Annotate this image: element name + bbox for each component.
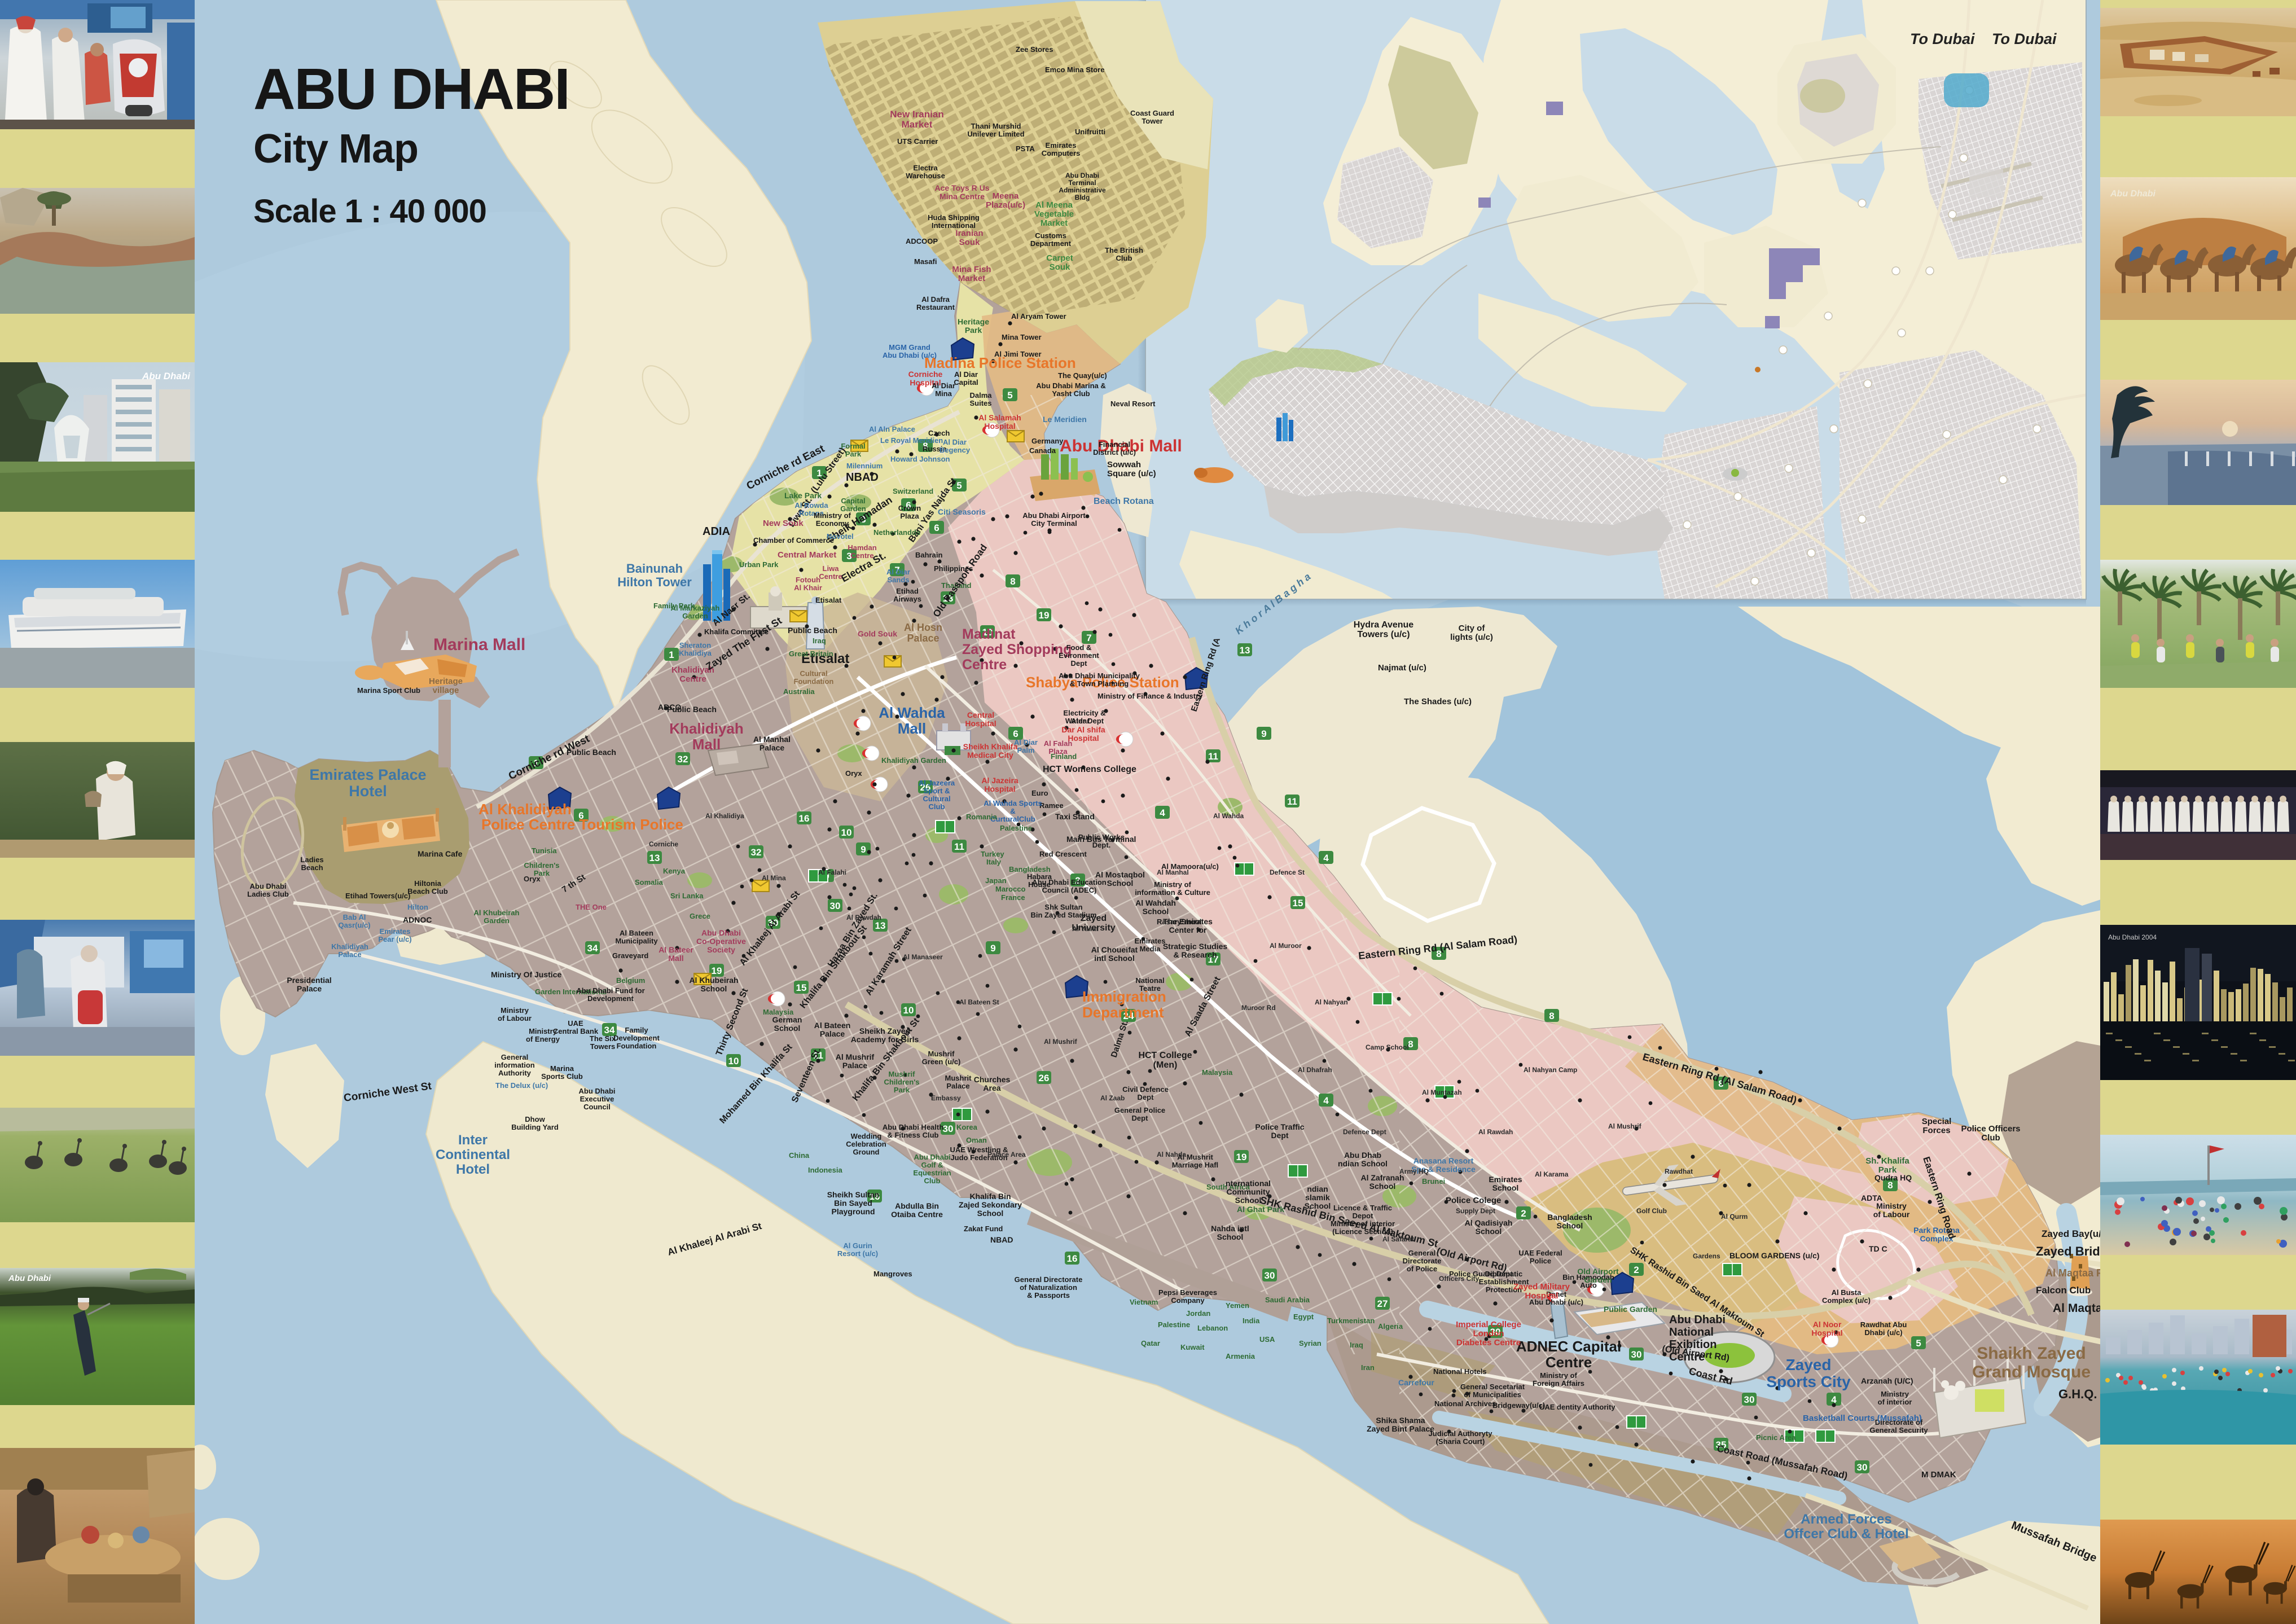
svg-text:Inter: Inter <box>458 1133 488 1148</box>
svg-text:Al Khubeirah: Al Khubeirah <box>689 976 738 985</box>
svg-text:Abu Dhabi Health: Abu Dhabi Health <box>883 1123 943 1131</box>
svg-text:lights (u/c): lights (u/c) <box>1450 633 1493 642</box>
svg-text:Marina Mall: Marina Mall <box>433 635 525 654</box>
svg-text:Etisalat: Etisalat <box>815 596 842 604</box>
svg-text:General Security: General Security <box>1869 1426 1928 1434</box>
svg-text:Lake Park: Lake Park <box>784 491 822 500</box>
svg-text:Mall: Mall <box>668 954 683 963</box>
svg-text:Sports Club: Sports Club <box>541 1072 583 1081</box>
svg-text:Ladies Club: Ladies Club <box>247 890 289 898</box>
svg-text:General Directorate: General Directorate <box>1015 1275 1083 1284</box>
svg-text:Al Khubeirah: Al Khubeirah <box>474 908 520 917</box>
svg-text:Electricity &: Electricity & <box>1063 709 1105 717</box>
svg-text:Al Diar: Al Diar <box>886 568 910 576</box>
svg-text:Bin Zayed Stadium: Bin Zayed Stadium <box>1030 911 1096 919</box>
svg-text:Al Nahda: Al Nahda <box>1157 1151 1186 1158</box>
svg-text:District (u/c): District (u/c) <box>1093 448 1136 457</box>
svg-text:Abu Dhabi Fund for: Abu Dhabi Fund for <box>576 986 644 995</box>
svg-text:G.H.Q.: G.H.Q. <box>2058 1387 2097 1401</box>
svg-text:Children's: Children's <box>884 1078 919 1086</box>
svg-text:Sheikh Sultan: Sheikh Sultan <box>827 1190 880 1199</box>
svg-text:& Fitness Club: & Fitness Club <box>887 1131 938 1139</box>
svg-text:Grece: Grece <box>690 912 710 920</box>
svg-text:intl School: intl School <box>1094 954 1135 963</box>
svg-text:Khalifa Bin: Khalifa Bin <box>969 1192 1011 1201</box>
svg-text:Corniche: Corniche <box>908 370 943 379</box>
svg-text:Souk: Souk <box>959 238 980 247</box>
svg-text:Al Dhafrah: Al Dhafrah <box>1298 1066 1332 1074</box>
svg-text:Presidential: Presidential <box>287 976 331 985</box>
svg-text:Terminal: Terminal <box>1068 179 1096 187</box>
svg-text:Area: Area <box>983 1083 1000 1092</box>
svg-text:Hospital: Hospital <box>984 784 1015 793</box>
svg-text:Council (ADEC): Council (ADEC) <box>1042 886 1097 894</box>
svg-text:Abu Dhabi: Abu Dhabi <box>8 1274 51 1283</box>
svg-text:To Dubai: To Dubai <box>1910 30 1975 47</box>
svg-text:Belgium: Belgium <box>616 976 645 985</box>
svg-text:BLOOM GARDENS (u/c): BLOOM GARDENS (u/c) <box>1729 1251 1819 1260</box>
svg-text:Park: Park <box>534 869 550 877</box>
svg-text:Abu Dhabi Municipality: Abu Dhabi Municipality <box>1059 671 1140 680</box>
svg-text:Shika Shama: Shika Shama <box>1376 1416 1425 1425</box>
svg-text:ADIA: ADIA <box>703 525 730 538</box>
svg-text:2: 2 <box>1634 1265 1639 1275</box>
svg-text:Basketball Courts (Mussafah): Basketball Courts (Mussafah) <box>1803 1414 1922 1423</box>
svg-text:Council: Council <box>583 1103 611 1111</box>
svg-text:Al Rawdah: Al Rawdah <box>1478 1128 1513 1136</box>
svg-text:Children's: Children's <box>524 861 559 870</box>
svg-text:Zayed Bint Palace: Zayed Bint Palace <box>1367 1424 1434 1433</box>
svg-text:National Hotels: National Hotels <box>1433 1367 1487 1376</box>
svg-text:School: School <box>1235 1196 1262 1205</box>
svg-text:MGM Grand: MGM Grand <box>889 343 930 352</box>
svg-text:Taxi Stand: Taxi Stand <box>1055 812 1095 821</box>
svg-text:Directorate: Directorate <box>1403 1257 1442 1265</box>
svg-text:Qasr(u/c): Qasr(u/c) <box>338 921 370 929</box>
svg-text:Al Wahdah: Al Wahdah <box>1135 898 1176 907</box>
svg-text:Al Gurin: Al Gurin <box>843 1241 872 1250</box>
svg-text:Etihad: Etihad <box>896 587 919 595</box>
svg-text:Imperial College: Imperial College <box>1456 1320 1521 1329</box>
svg-text:Madinat: Madinat <box>962 626 1016 642</box>
svg-text:Ministry: Ministry <box>1876 1201 1907 1210</box>
svg-text:ADNOC: ADNOC <box>403 915 432 924</box>
svg-text:Palace: Palace <box>842 1061 868 1070</box>
svg-text:Restaurant: Restaurant <box>916 303 955 311</box>
svg-text:Al Bateer: Al Bateer <box>658 945 693 954</box>
svg-text:Marina: Marina <box>550 1064 574 1073</box>
svg-text:Park: Park <box>894 1086 910 1094</box>
svg-text:Al Qurm: Al Qurm <box>1721 1213 1748 1221</box>
svg-text:Ministry of: Ministry of <box>1540 1371 1577 1380</box>
svg-text:Al Qadisiyah: Al Qadisiyah <box>1465 1218 1513 1227</box>
svg-text:International: International <box>932 221 976 230</box>
svg-text:Carpet: Carpet <box>1046 253 1073 263</box>
svg-text:Etihad Towers(u/c): Etihad Towers(u/c) <box>345 892 410 900</box>
svg-text:Club: Club <box>929 802 945 811</box>
svg-text:Bin Sayed: Bin Sayed <box>834 1199 872 1208</box>
svg-text:Aldar: Aldar <box>1071 717 1090 725</box>
svg-text:School: School <box>1143 907 1169 916</box>
svg-text:Al Mushrif: Al Mushrif <box>836 1052 875 1061</box>
svg-text:Dept: Dept <box>1138 1093 1154 1101</box>
svg-text:Evironment: Evironment <box>1059 651 1099 660</box>
svg-text:Al Diar: Al Diar <box>954 370 978 379</box>
svg-text:32: 32 <box>678 754 688 765</box>
svg-text:Square (u/c): Square (u/c) <box>1107 469 1156 479</box>
svg-text:Anasana Resort: Anasana Resort <box>1413 1156 1474 1165</box>
svg-text:NBAD: NBAD <box>846 471 879 484</box>
svg-text:Iraq: Iraq <box>1350 1341 1363 1349</box>
svg-text:Unifruitti: Unifruitti <box>1075 128 1105 136</box>
svg-text:Abu Dhabi: Abu Dhabi <box>1065 172 1099 179</box>
svg-text:Emirates Palace: Emirates Palace <box>309 766 426 783</box>
svg-text:Mangroves: Mangroves <box>873 1270 912 1278</box>
svg-text:Crown: Crown <box>898 504 921 512</box>
svg-text:16: 16 <box>799 813 810 824</box>
svg-text:Liwa: Liwa <box>823 564 840 573</box>
svg-text:Municipality: Municipality <box>615 937 658 945</box>
svg-text:Police Colege: Police Colege <box>1446 1196 1501 1205</box>
svg-text:Turkey: Turkey <box>981 850 1004 858</box>
svg-text:Resort (u/c): Resort (u/c) <box>837 1249 878 1258</box>
svg-text:The Six: The Six <box>590 1034 616 1043</box>
svg-text:Abdulla Bin: Abdulla Bin <box>895 1201 939 1210</box>
svg-text:Police Centre Tourism Police: Police Centre Tourism Police <box>481 816 683 833</box>
svg-text:Ministry Of Justice: Ministry Of Justice <box>491 970 561 979</box>
svg-text:Abu Dhabi: Abu Dhabi <box>914 1153 951 1161</box>
svg-text:Al Wahda: Al Wahda <box>879 704 945 721</box>
svg-text:School: School <box>1557 1221 1583 1230</box>
svg-text:Unilever Limited: Unilever Limited <box>967 130 1024 138</box>
svg-text:Civil Defence: Civil Defence <box>1122 1085 1169 1094</box>
svg-text:Al Busta: Al Busta <box>1832 1288 1862 1297</box>
svg-text:Zayed Bay(u/c): Zayed Bay(u/c) <box>2042 1228 2110 1239</box>
svg-text:Hospital: Hospital <box>1068 734 1099 743</box>
svg-text:Emco Mina Store: Emco Mina Store <box>1045 65 1104 74</box>
svg-text:11: 11 <box>1287 796 1297 807</box>
svg-text:M DMAK: M DMAK <box>1921 1470 1956 1480</box>
svg-text:Club: Club <box>1981 1133 2000 1143</box>
svg-text:nternational: nternational <box>1226 1179 1271 1188</box>
svg-text:Abu Dhabi Marina &: Abu Dhabi Marina & <box>1036 381 1106 390</box>
svg-text:Sheraton: Sheraton <box>679 641 711 649</box>
svg-text:Rawdhat: Rawdhat <box>1665 1167 1693 1175</box>
svg-text:Ace Toys R Us: Ace Toys R Us <box>935 183 990 192</box>
svg-text:Palestine: Palestine <box>1158 1320 1190 1329</box>
svg-text:9: 9 <box>990 943 995 954</box>
svg-text:National Archives: National Archives <box>1434 1399 1496 1408</box>
svg-text:Defence Dept: Defence Dept <box>1343 1128 1386 1136</box>
svg-text:Armenia: Armenia <box>1226 1352 1255 1360</box>
svg-text:Financial: Financial <box>1099 440 1130 449</box>
svg-text:Tower: Tower <box>1142 117 1162 125</box>
svg-text:&: & <box>1010 807 1015 815</box>
svg-text:Pear (u/c): Pear (u/c) <box>378 935 411 943</box>
svg-text:Korea: Korea <box>956 1123 978 1131</box>
svg-text:Mina Fish: Mina Fish <box>952 265 991 274</box>
svg-text:Hilton: Hilton <box>407 903 428 911</box>
svg-text:Emirates: Emirates <box>1046 141 1077 150</box>
svg-text:Abu Dhabi: Abu Dhabi <box>250 882 287 890</box>
svg-text:Al Jazeera: Al Jazeera <box>919 779 955 787</box>
svg-text:Zayed Military: Zayed Military <box>1513 1282 1570 1292</box>
svg-text:27: 27 <box>1377 1298 1388 1309</box>
svg-text:(Men): (Men) <box>1153 1060 1178 1070</box>
svg-text:Al Rowda: Al Rowda <box>794 501 828 510</box>
svg-text:Mushrif: Mushrif <box>928 1050 955 1058</box>
svg-text:Sport &: Sport & <box>924 787 950 795</box>
svg-text:Al Meena: Al Meena <box>1035 200 1073 210</box>
svg-text:Ministry of: Ministry of <box>1154 880 1191 889</box>
svg-text:village: village <box>433 686 459 695</box>
svg-text:Hotel: Hotel <box>456 1162 490 1177</box>
svg-text:Sheikh Khalifa: Sheikh Khalifa <box>963 742 1018 751</box>
svg-text:Marina Sport Club: Marina Sport Club <box>357 686 420 695</box>
svg-text:8: 8 <box>1549 1011 1554 1021</box>
svg-text:Airways: Airways <box>893 595 921 603</box>
svg-text:Gold Souk: Gold Souk <box>858 629 897 638</box>
svg-text:Brunei: Brunei <box>1422 1177 1445 1186</box>
svg-text:City Map: City Map <box>253 126 418 172</box>
svg-text:Bangladesh: Bangladesh <box>1547 1213 1592 1222</box>
svg-text:9: 9 <box>1261 728 1266 739</box>
svg-text:UAE dentity Authority: UAE dentity Authority <box>1539 1403 1615 1411</box>
svg-text:Khalidiyah: Khalidiyah <box>669 720 743 737</box>
svg-text:Diabetes Centre: Diabetes Centre <box>1456 1338 1521 1348</box>
svg-text:Palace: Palace <box>338 950 361 959</box>
svg-text:Garden: Garden <box>1584 1275 1612 1284</box>
svg-text:Ministry: Ministry <box>501 1006 529 1015</box>
svg-text:Palace: Palace <box>297 984 322 993</box>
svg-text:of Labour: of Labour <box>498 1014 532 1022</box>
svg-text:Al Wahda: Al Wahda <box>1213 812 1244 820</box>
svg-text:Huda Shipping: Huda Shipping <box>928 213 980 222</box>
svg-text:Palestine: Palestine <box>1000 824 1032 832</box>
svg-text:Al Choueifat: Al Choueifat <box>1091 945 1138 954</box>
svg-text:Al Mushrif: Al Mushrif <box>1608 1122 1642 1130</box>
svg-text:USA: USA <box>1259 1335 1275 1344</box>
svg-text:Indonesia: Indonesia <box>808 1166 842 1174</box>
svg-text:Kuwait: Kuwait <box>1180 1343 1205 1351</box>
svg-text:Beach: Beach <box>301 863 323 872</box>
svg-text:Strategic Studies: Strategic Studies <box>1163 942 1228 951</box>
svg-text:PSTA: PSTA <box>1016 144 1035 153</box>
svg-text:Administrative: Administrative <box>1059 186 1106 194</box>
svg-text:Plaza: Plaza <box>900 512 919 520</box>
svg-text:Tunisia: Tunisia <box>532 846 557 855</box>
svg-text:Thani Murshid: Thani Murshid <box>971 122 1021 130</box>
svg-text:The Delux (u/c): The Delux (u/c) <box>495 1081 548 1090</box>
svg-text:New Iranian: New Iranian <box>890 109 943 120</box>
svg-text:School: School <box>1369 1182 1396 1191</box>
svg-text:Park: Park <box>1878 1165 1897 1175</box>
svg-text:Abu Dhabi Education: Abu Dhabi Education <box>1032 878 1107 886</box>
svg-text:Abu Dhabi (u/c): Abu Dhabi (u/c) <box>883 351 937 359</box>
svg-text:School: School <box>977 1209 1004 1218</box>
svg-text:Complex (u/c): Complex (u/c) <box>1822 1296 1871 1305</box>
svg-text:General Police: General Police <box>1114 1106 1165 1114</box>
svg-text:Falcon Club: Falcon Club <box>2036 1285 2091 1296</box>
svg-text:30: 30 <box>1631 1349 1642 1360</box>
svg-text:Ramee: Ramee <box>1039 801 1064 810</box>
svg-text:Park: Park <box>965 326 982 335</box>
svg-text:Sports City: Sports City <box>1766 1373 1851 1390</box>
svg-text:information: information <box>494 1061 535 1069</box>
svg-text:Chamber of Commerce: Chamber of Commerce <box>753 536 834 545</box>
svg-text:Hospital: Hospital <box>1811 1328 1842 1337</box>
svg-text:9: 9 <box>861 844 866 855</box>
svg-text:Zee Stores: Zee Stores <box>1016 45 1053 54</box>
svg-text:Arzanah (U/C): Arzanah (U/C) <box>1861 1376 1913 1385</box>
svg-text:Yemen: Yemen <box>1226 1301 1249 1310</box>
svg-text:Al Muroor: Al Muroor <box>1270 942 1302 950</box>
svg-text:Mina Tower: Mina Tower <box>1002 333 1042 341</box>
svg-text:Zayed Shopping: Zayed Shopping <box>962 642 1072 657</box>
svg-text:Cultural: Cultural <box>923 795 950 803</box>
svg-text:Bangladesh: Bangladesh <box>1009 865 1051 874</box>
svg-text:4: 4 <box>1160 807 1165 818</box>
svg-text:Army HQ: Army HQ <box>1399 1167 1429 1175</box>
svg-text:Al Falahi: Al Falahi <box>818 868 846 876</box>
svg-text:of interior: of interior <box>1878 1398 1912 1406</box>
svg-text:Gardens: Gardens <box>1693 1252 1720 1260</box>
svg-text:Towers (u/c): Towers (u/c) <box>1357 630 1410 639</box>
svg-text:UAE: UAE <box>568 1019 583 1028</box>
svg-text:Hospital: Hospital <box>1525 1291 1558 1301</box>
svg-text:Khalidiyah Garden: Khalidiyah Garden <box>881 756 946 765</box>
svg-text:National: National <box>1669 1326 1714 1338</box>
svg-text:NBAD: NBAD <box>990 1235 1013 1244</box>
svg-text:Hydra Avenue: Hydra Avenue <box>1354 620 1414 630</box>
svg-text:Department: Department <box>1082 1004 1164 1021</box>
svg-text:Egypt: Egypt <box>1293 1313 1314 1321</box>
svg-text:Al Bateen: Al Bateen <box>620 929 653 937</box>
svg-text:Golf &: Golf & <box>921 1161 943 1169</box>
svg-text:Masafi: Masafi <box>914 257 937 266</box>
svg-text:Malaysia: Malaysia <box>1202 1068 1233 1077</box>
svg-text:Al Zaab: Al Zaab <box>1100 1094 1125 1102</box>
svg-text:Al Noor: Al Noor <box>1813 1320 1842 1329</box>
svg-text:School: School <box>1107 879 1134 888</box>
svg-text:Iranian: Iranian <box>955 229 983 238</box>
svg-text:Al Khalidiyah: Al Khalidiyah <box>478 801 572 818</box>
svg-text:Sands: Sands <box>887 576 909 584</box>
svg-text:Khalidiya: Khalidiya <box>679 649 712 657</box>
svg-text:Police Traffic: Police Traffic <box>1255 1122 1304 1131</box>
svg-text:Dept: Dept <box>1132 1114 1149 1122</box>
svg-text:Corniche: Corniche <box>649 840 678 848</box>
svg-text:Co-Operative: Co-Operative <box>696 937 746 946</box>
svg-text:Neval Resort: Neval Resort <box>1110 400 1156 408</box>
svg-text:30: 30 <box>1744 1394 1755 1405</box>
svg-text:Khalidiyah: Khalidiyah <box>331 942 368 951</box>
svg-text:Le Meridien: Le Meridien <box>1043 415 1087 424</box>
svg-text:Centre: Centre <box>962 657 1007 673</box>
svg-text:CurturalClub: CurturalClub <box>990 815 1035 823</box>
svg-text:City Terminal: City Terminal <box>1031 519 1077 528</box>
svg-text:Syrian: Syrian <box>1299 1339 1322 1348</box>
svg-text:Switzerland: Switzerland <box>893 487 933 495</box>
svg-text:Begency: Begency <box>940 446 971 454</box>
svg-text:of Municipalities: of Municipalities <box>1464 1390 1521 1399</box>
svg-text:Muroor Rd: Muroor Rd <box>1241 1004 1276 1012</box>
svg-text:15: 15 <box>796 982 807 993</box>
svg-text:Al Diar: Al Diar <box>943 438 967 446</box>
svg-text:Fotouh: Fotouh <box>796 576 820 584</box>
svg-text:Al Diar: Al Diar <box>1014 738 1038 747</box>
svg-text:Club: Club <box>924 1177 941 1185</box>
svg-text:Somalia: Somalia <box>635 878 664 886</box>
svg-text:Abu Dhabi Airport: Abu Dhabi Airport <box>1022 511 1086 520</box>
svg-text:(Sharia Court): (Sharia Court) <box>1436 1437 1485 1446</box>
svg-text:Economy: Economy <box>816 519 849 528</box>
svg-text:Howard Johnson: Howard Johnson <box>890 455 950 463</box>
svg-text:Computers: Computers <box>1042 149 1081 157</box>
svg-text:Foreign Affairs: Foreign Affairs <box>1533 1379 1584 1388</box>
svg-text:7: 7 <box>1086 633 1091 643</box>
svg-text:Palace: Palace <box>946 1082 969 1090</box>
svg-text:30: 30 <box>1857 1462 1868 1473</box>
svg-text:Abu Dhabi: Abu Dhabi <box>142 371 191 381</box>
svg-text:Finland: Finland <box>1051 752 1077 761</box>
svg-text:The Shades (u/c): The Shades (u/c) <box>1404 697 1472 706</box>
svg-text:Bldg: Bldg <box>1075 194 1090 201</box>
svg-text:Club: Club <box>1116 254 1132 262</box>
svg-text:Oryx: Oryx <box>845 769 862 778</box>
svg-text:Urban Park: Urban Park <box>739 560 779 569</box>
svg-text:Marina Cafe: Marina Cafe <box>418 849 463 858</box>
svg-text:Foundation: Foundation <box>794 677 834 686</box>
svg-text:Abu Dhabi: Abu Dhabi <box>1669 1314 1726 1326</box>
svg-text:Armed Forces: Armed Forces <box>1801 1512 1891 1527</box>
svg-text:Mina: Mina <box>935 389 952 398</box>
svg-text:Al Khalidiya: Al Khalidiya <box>705 812 744 820</box>
svg-text:France: France <box>1001 893 1025 902</box>
svg-text:Graveyard: Graveyard <box>612 951 648 960</box>
svg-text:Shk Sultan: Shk Sultan <box>1044 903 1082 911</box>
svg-text:General: General <box>501 1053 528 1061</box>
svg-text:Bainunah: Bainunah <box>626 561 683 576</box>
svg-text:5: 5 <box>1007 390 1012 401</box>
svg-text:Italy: Italy <box>986 858 1002 866</box>
svg-text:26: 26 <box>1039 1073 1050 1083</box>
svg-text:Camp School: Camp School <box>1366 1043 1409 1051</box>
svg-text:Authority: Authority <box>498 1069 532 1077</box>
svg-text:Czech: Czech <box>928 429 950 437</box>
svg-text:Park: Park <box>845 450 862 458</box>
svg-text:Playground: Playground <box>831 1207 875 1216</box>
svg-text:Scale 1 : 40 000: Scale 1 : 40 000 <box>253 193 486 230</box>
svg-text:Al Dafra: Al Dafra <box>921 295 950 304</box>
svg-text:16: 16 <box>1067 1253 1078 1264</box>
svg-text:Japan: Japan <box>985 876 1007 885</box>
svg-text:Executive: Executive <box>580 1095 614 1103</box>
svg-text:Al Khair: Al Khair <box>794 583 822 592</box>
svg-text:Golf Club: Golf Club <box>1636 1207 1667 1215</box>
svg-text:Old Airport: Old Airport <box>1577 1267 1619 1276</box>
svg-text:Marriage Hafl: Marriage Hafl <box>1172 1161 1218 1169</box>
svg-text:Heritage: Heritage <box>958 317 989 326</box>
svg-text:Al Nahyan: Al Nahyan <box>1315 998 1348 1006</box>
svg-text:Center for: Center for <box>1169 925 1207 934</box>
svg-text:of Police: of Police <box>1407 1265 1437 1273</box>
svg-text:Abu Dhabi: Abu Dhabi <box>701 928 741 937</box>
svg-text:Food &: Food & <box>1066 643 1092 652</box>
svg-text:Pepsi Beverages: Pepsi Beverages <box>1158 1288 1217 1297</box>
svg-text:slamik: slamik <box>1305 1193 1330 1202</box>
svg-text:Special: Special <box>1922 1117 1952 1126</box>
